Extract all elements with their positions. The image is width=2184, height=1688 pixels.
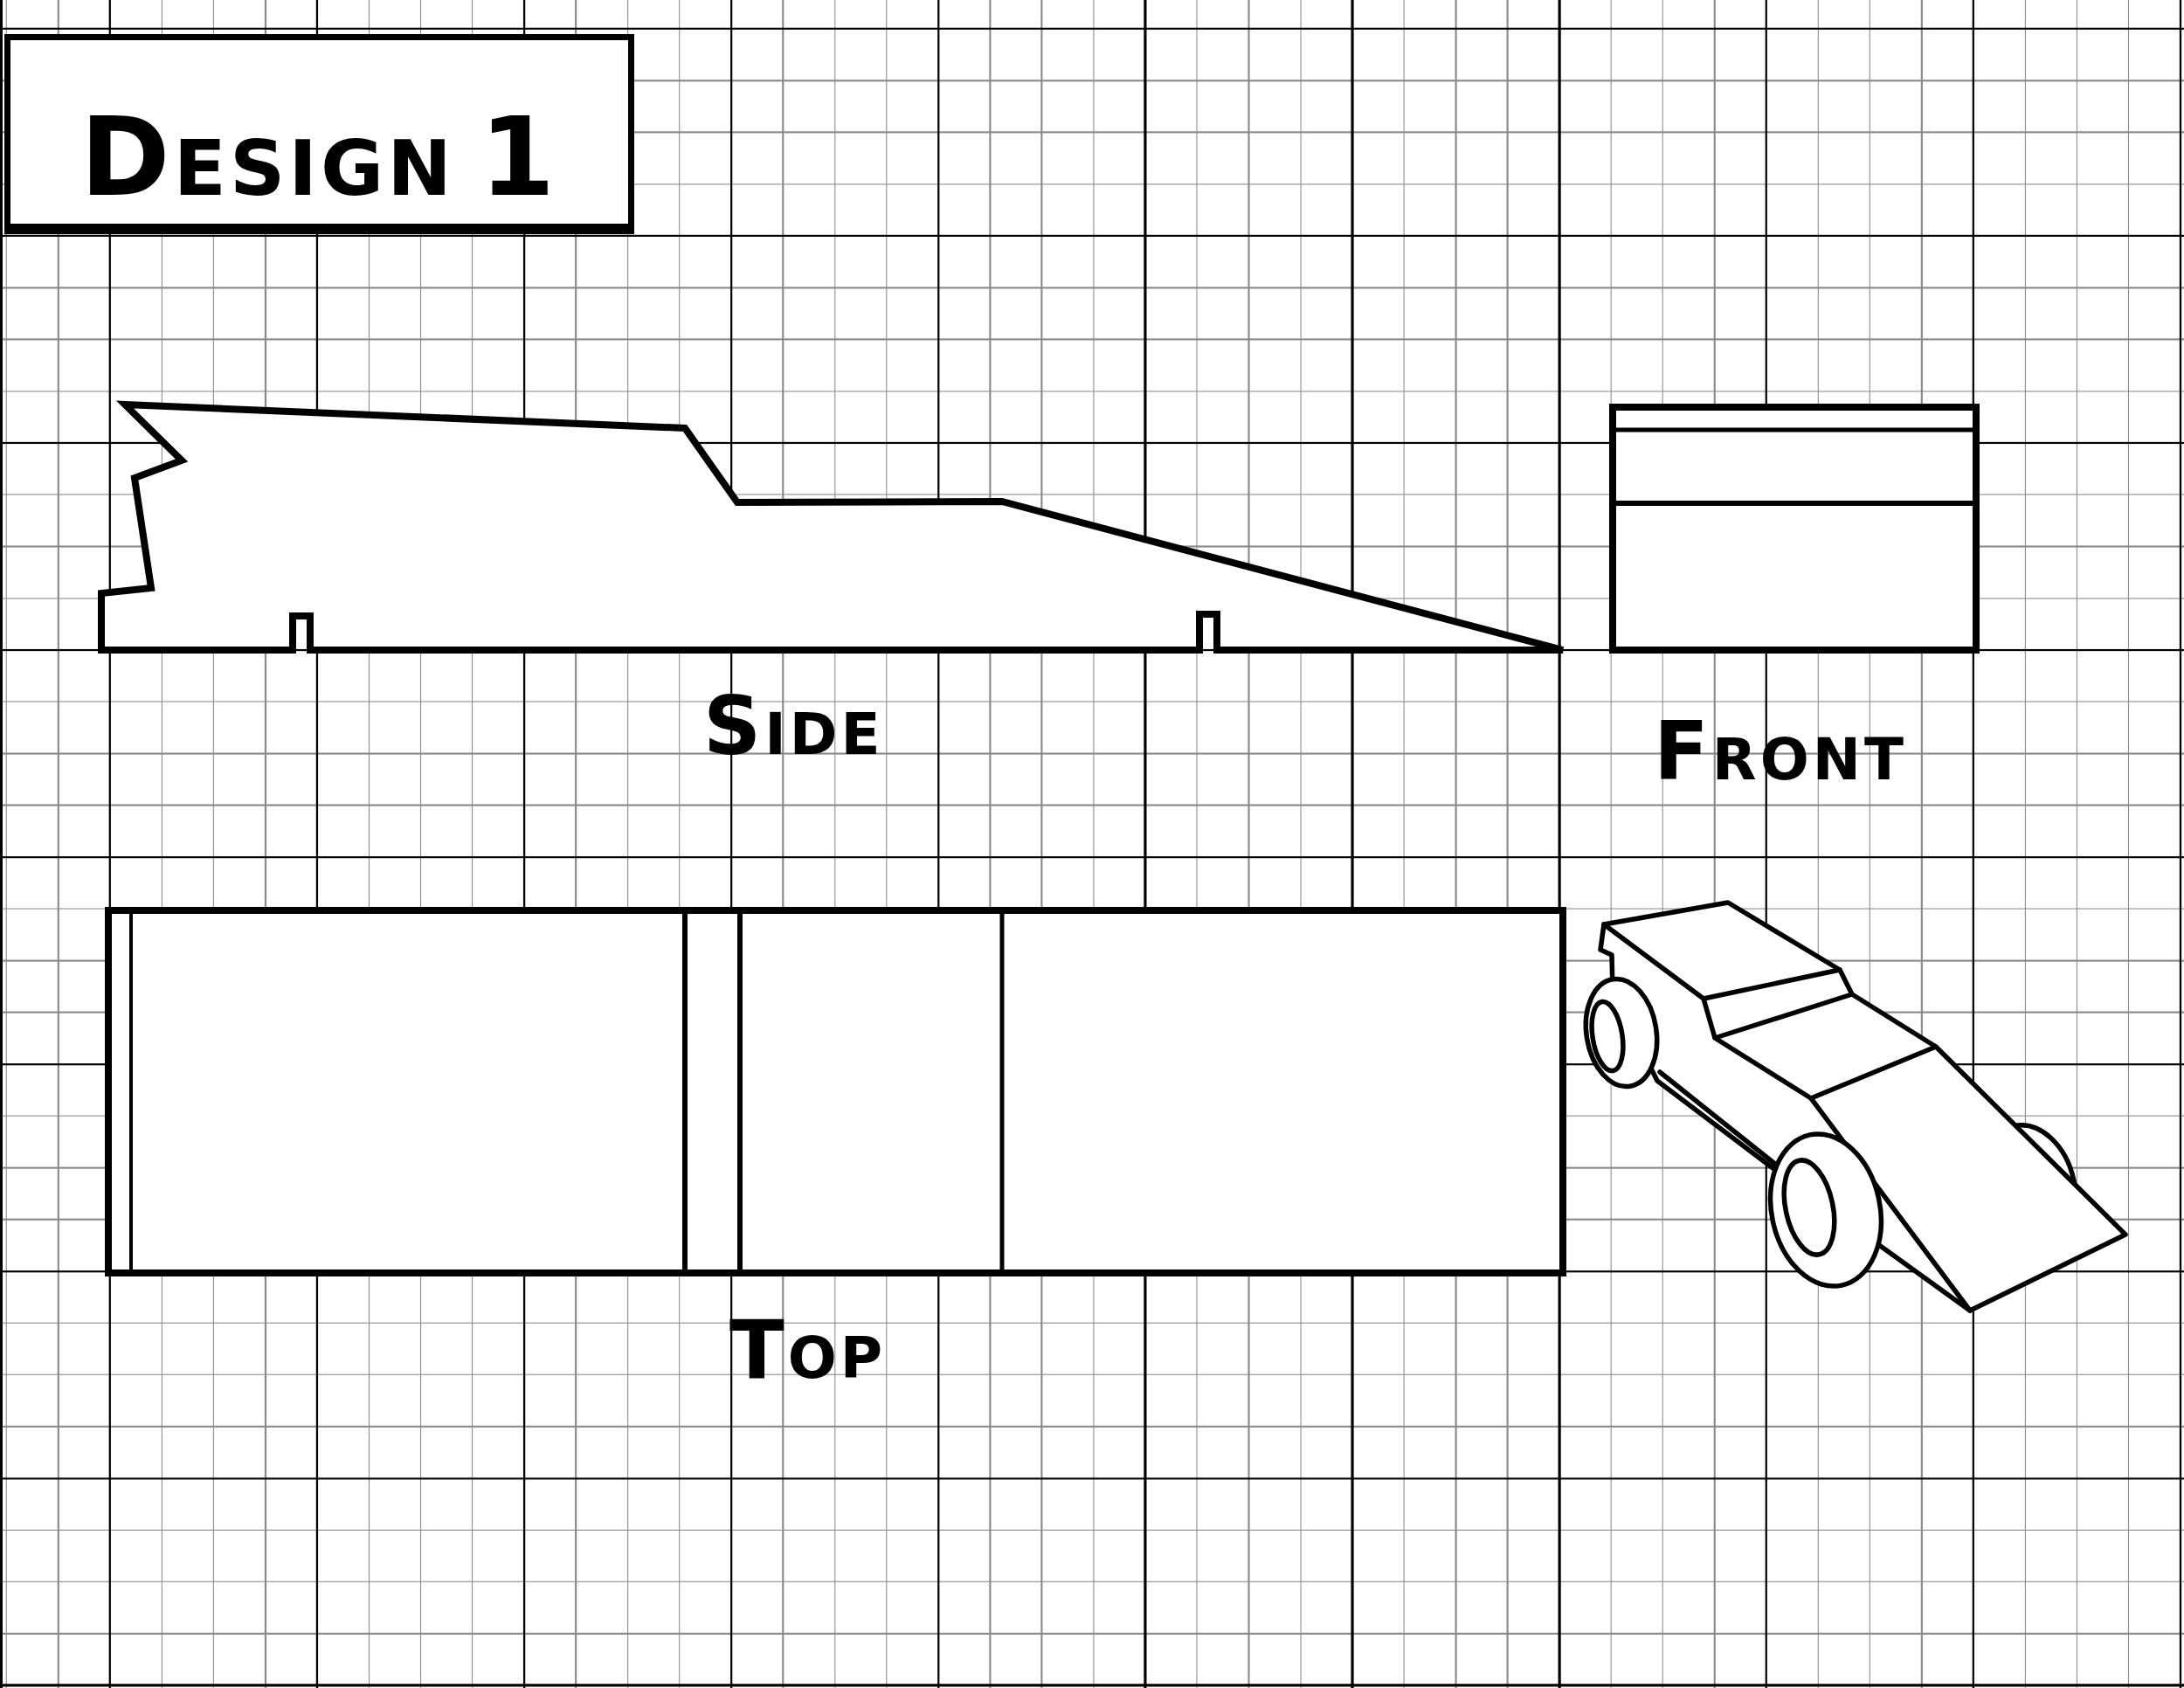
top-view-drawing — [108, 910, 1563, 1273]
front-view-outline — [1613, 407, 1976, 650]
side-view-outline — [101, 405, 1563, 650]
view-label-front: F RONT — [1654, 712, 1907, 792]
top-label-initial: T — [729, 1311, 788, 1391]
front-label-initial: F — [1654, 712, 1712, 792]
side-view-drawing — [101, 405, 1563, 650]
technical-drawing-layer — [0, 0, 2184, 1688]
title-box: D ESIGN 1 — [4, 34, 634, 234]
design-title-number: 1 — [480, 103, 558, 211]
design-title: D ESIGN 1 — [80, 103, 558, 211]
design-title-initial: D — [80, 103, 174, 211]
side-label-rest: IDE — [764, 706, 883, 764]
front-label-rest: RONT — [1712, 731, 1907, 789]
top-label-rest: OP — [788, 1330, 886, 1387]
view-label-side: S IDE — [703, 687, 884, 767]
view-label-top: T OP — [729, 1311, 886, 1391]
front-view-drawing — [1613, 407, 1976, 650]
blueprint-page: D ESIGN 1 S IDE F RONT T OP — [0, 0, 2184, 1688]
side-label-initial: S — [703, 687, 764, 767]
isometric-car-drawing — [1579, 903, 2125, 1311]
top-view-outline — [108, 910, 1563, 1273]
design-title-rest: ESIGN — [174, 130, 455, 207]
